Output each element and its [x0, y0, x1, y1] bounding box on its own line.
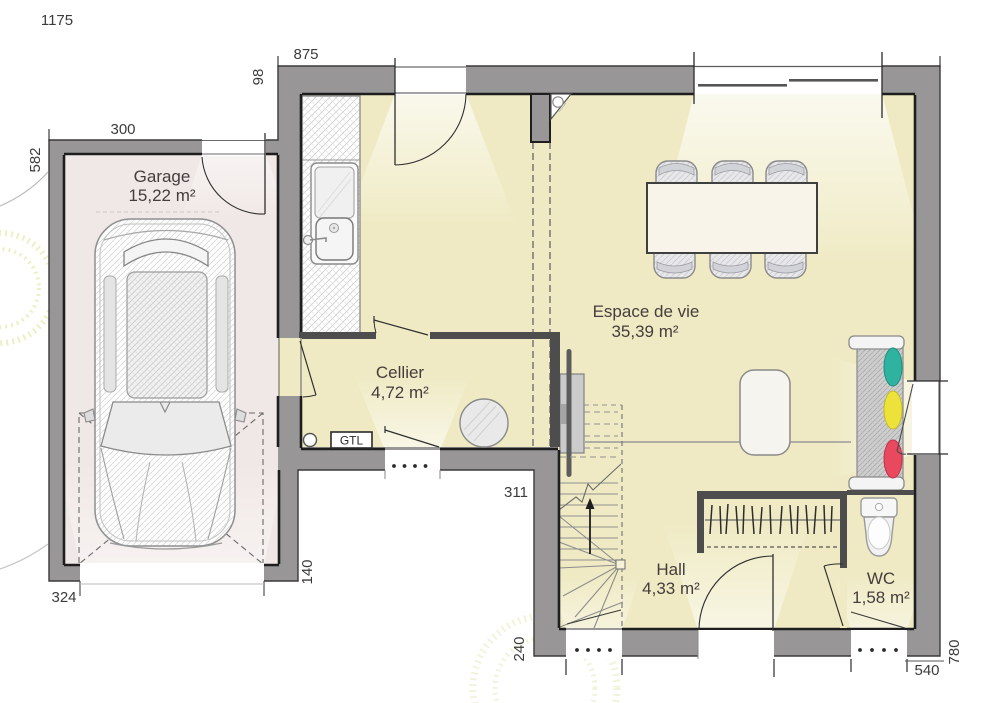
svg-text:240: 240 — [511, 636, 528, 661]
svg-text:582: 582 — [27, 147, 44, 172]
svg-text:4,33 m²: 4,33 m² — [642, 579, 700, 598]
svg-text:300: 300 — [110, 121, 135, 138]
svg-text:875: 875 — [293, 46, 318, 63]
svg-text:WC: WC — [867, 569, 895, 588]
svg-text:GTL: GTL — [340, 434, 364, 448]
svg-text:98: 98 — [250, 69, 267, 86]
svg-text:1175: 1175 — [41, 12, 73, 29]
svg-text:15,22 m²: 15,22 m² — [128, 186, 195, 205]
svg-text:Espace de vie: Espace de vie — [593, 302, 700, 321]
svg-text:311: 311 — [504, 484, 528, 501]
svg-text:35,39 m²: 35,39 m² — [611, 322, 678, 341]
svg-text:Cellier: Cellier — [376, 363, 425, 382]
svg-text:Garage: Garage — [134, 167, 191, 186]
svg-text:4,72 m²: 4,72 m² — [371, 383, 429, 402]
svg-text:540: 540 — [914, 662, 939, 679]
svg-text:324: 324 — [51, 589, 76, 606]
svg-text:140: 140 — [299, 559, 316, 584]
svg-text:780: 780 — [946, 639, 963, 664]
svg-text:1,58 m²: 1,58 m² — [852, 588, 910, 607]
svg-text:Hall: Hall — [656, 560, 685, 579]
